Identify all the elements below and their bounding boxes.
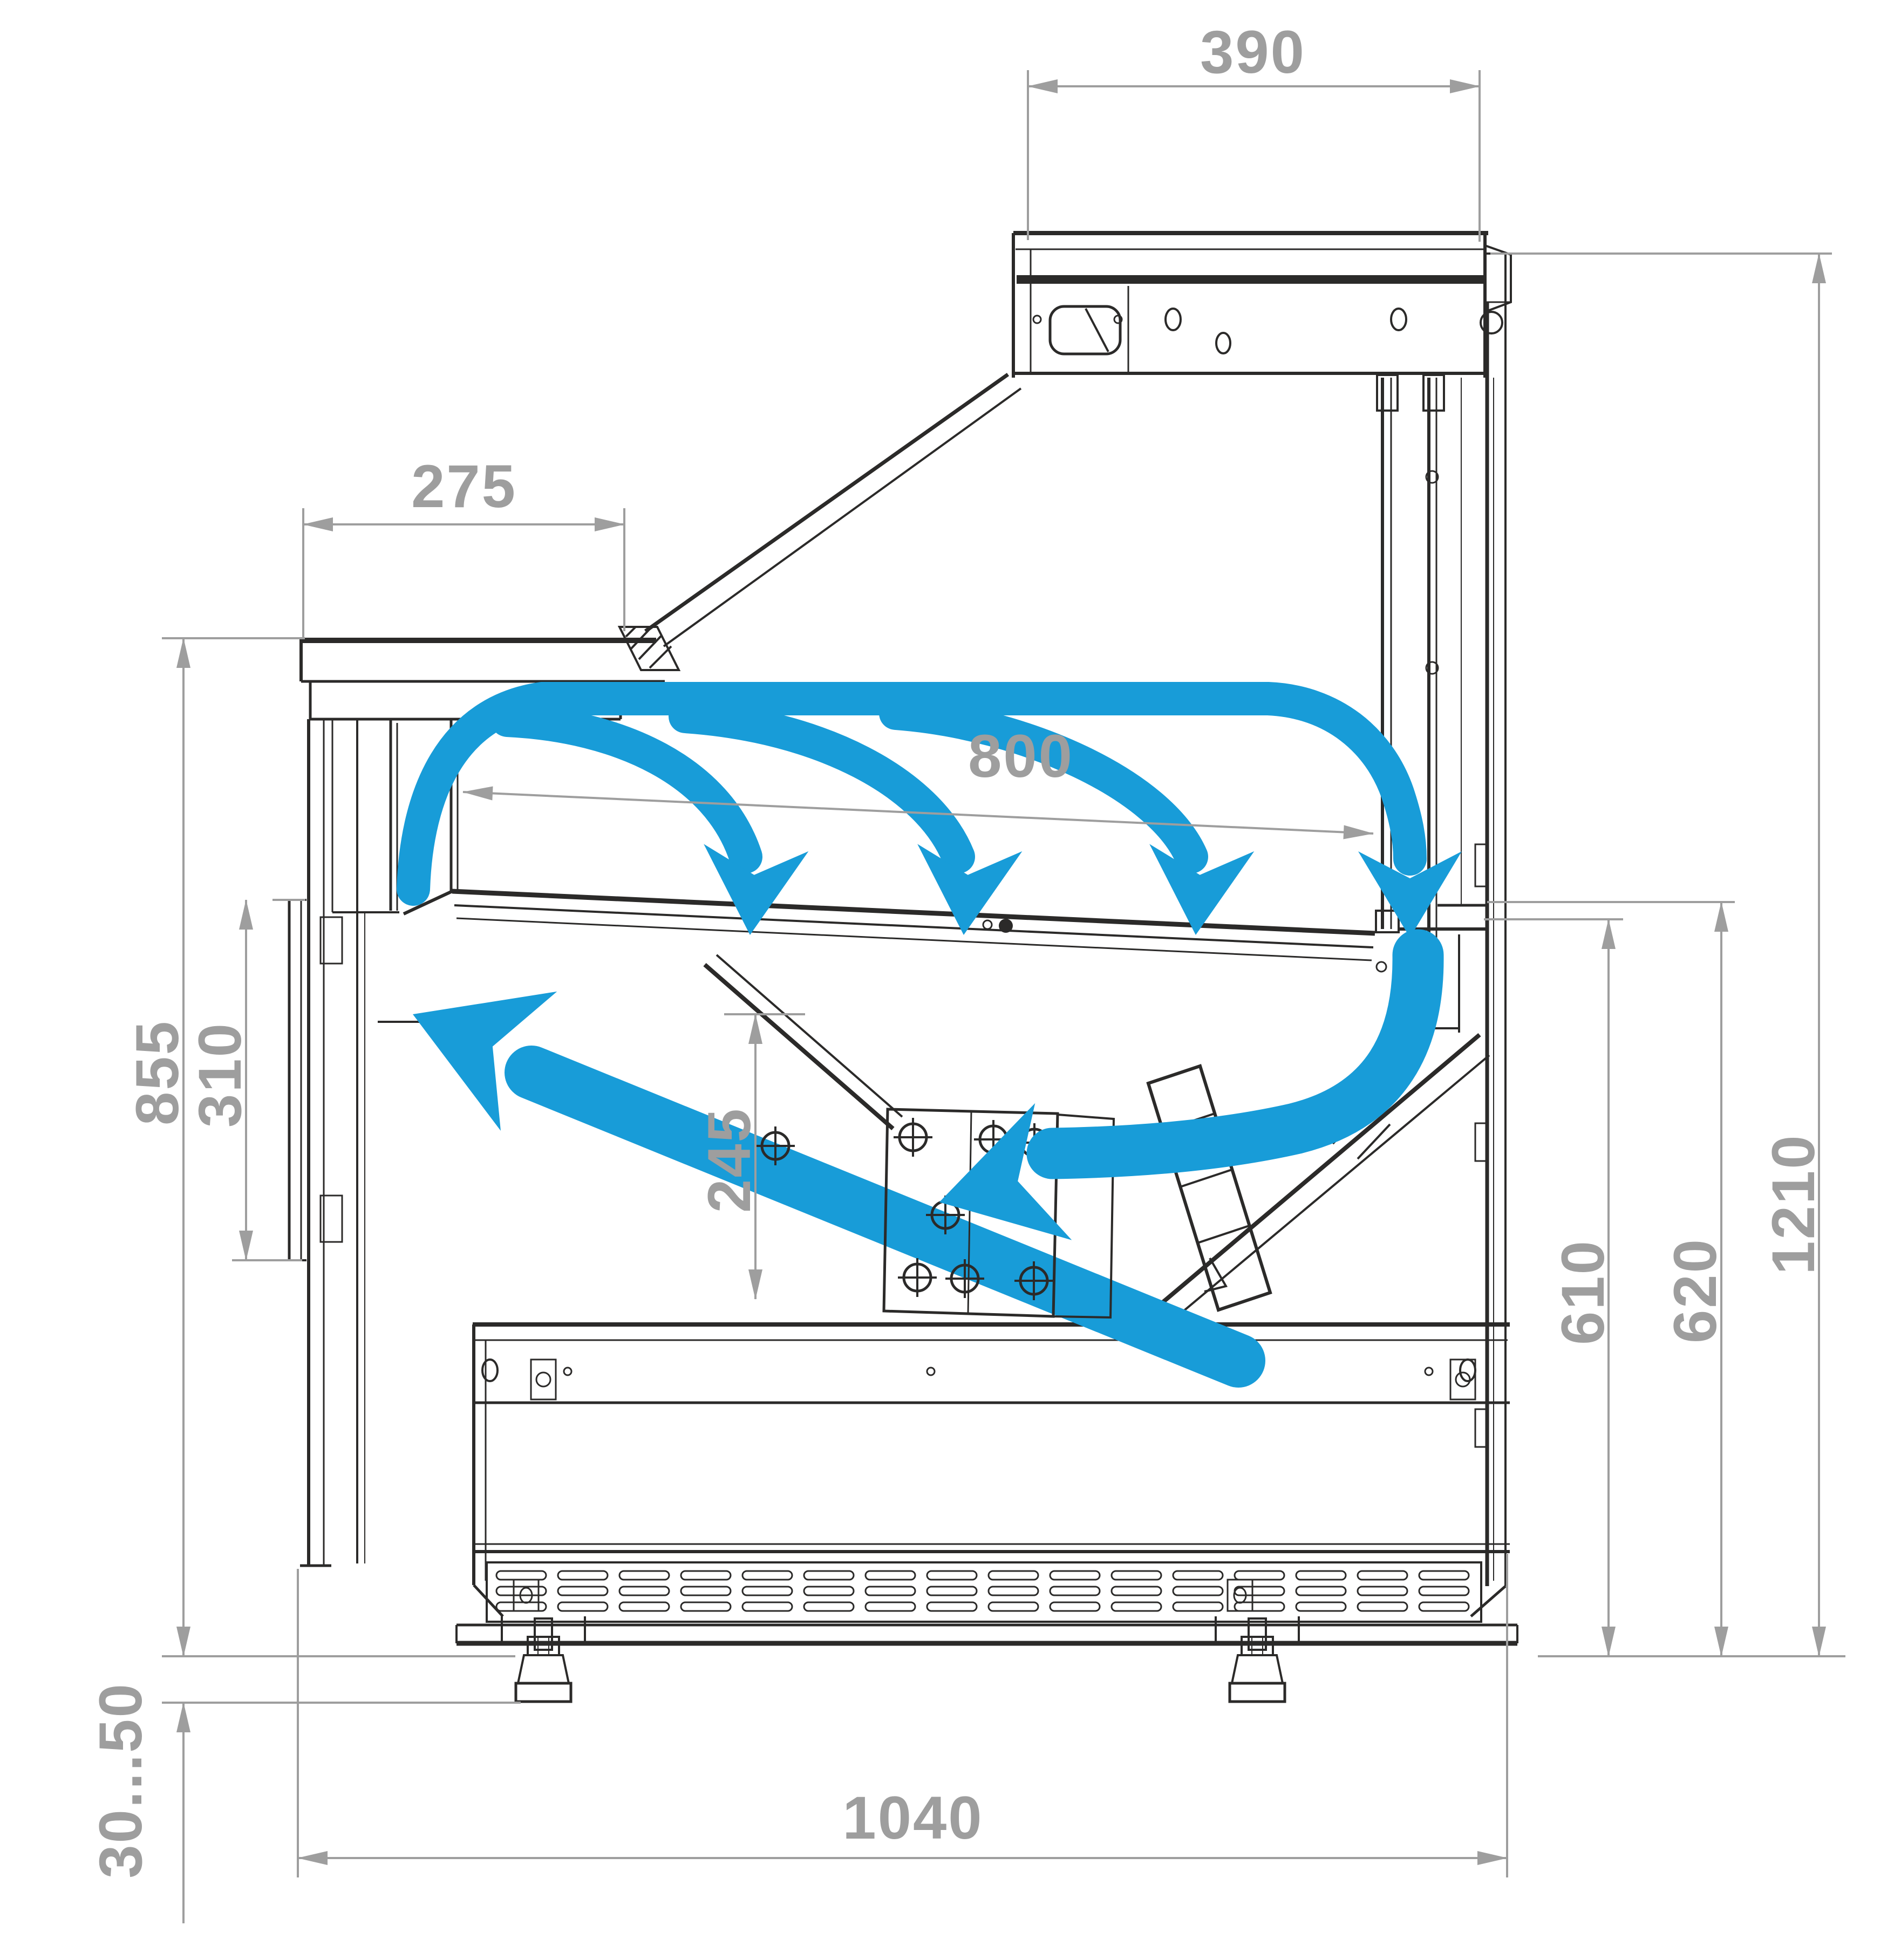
vent-grille-slot [558, 1602, 608, 1611]
vent-grille-slot [558, 1571, 608, 1580]
display-deck-part [1377, 962, 1386, 972]
vent-grille-slot [742, 1587, 792, 1595]
air-deflector-part [1180, 1170, 1232, 1187]
dimension-620: 620 [1661, 902, 1729, 1656]
well-structure-part [717, 955, 902, 1117]
vent-grille-slot [558, 1587, 608, 1595]
adjustable-foot-left-part [528, 1637, 559, 1655]
vent-grille-slot [866, 1571, 915, 1580]
dimension-245: 245 [696, 1014, 763, 1299]
dim-855-label: 855 [124, 1020, 191, 1125]
dim-30-50-label: 30...50 [87, 1682, 154, 1879]
drawing-canvas: 390 275 800 855 310 245 610 620 1210 104… [0, 0, 1901, 1960]
front-glass-part [664, 388, 1021, 646]
dimension-855: 855 [124, 638, 191, 1656]
vent-grille-slot [804, 1587, 854, 1595]
vent-grille-slot [619, 1571, 669, 1580]
vent-grille-slot [927, 1602, 977, 1611]
vent-grille-slot [866, 1602, 915, 1611]
vent-grille-slot [1358, 1587, 1407, 1595]
dim-610-label: 610 [1549, 1239, 1617, 1345]
vent-grille-slot [1112, 1571, 1161, 1580]
front-glass [645, 374, 1021, 646]
well-structure-part [705, 965, 893, 1129]
machine-compartment-part [536, 1372, 550, 1387]
dimension-30-50: 30...50 [87, 1682, 154, 1879]
vent-grille-slot [1296, 1571, 1346, 1580]
dim-275-label: 275 [411, 453, 517, 520]
canopy [1013, 233, 1511, 378]
canopy-part [1033, 316, 1041, 323]
vent-grille-slot [804, 1571, 854, 1580]
dimension-310: 310 [186, 900, 254, 1260]
vent-grille-slot [1419, 1602, 1469, 1611]
vent-grille-slot [681, 1571, 731, 1580]
airflow-return [1052, 955, 1418, 1153]
vent-grille-slot [619, 1602, 669, 1611]
machine-compartment-part [482, 1360, 498, 1381]
vent-grille-slot [1050, 1571, 1100, 1580]
dimension-610: 610 [1549, 919, 1617, 1656]
dim-390-label: 390 [1200, 18, 1306, 86]
dim-1040-label: 1040 [842, 1784, 983, 1852]
vent-grille-slot [866, 1587, 915, 1595]
vent-grille-slot [804, 1602, 854, 1611]
vent-grille-slot [496, 1571, 546, 1580]
vent-grille-slot [1235, 1602, 1284, 1611]
adjustable-foot-left-part [516, 1683, 571, 1702]
dim-245-label: 245 [696, 1107, 763, 1213]
canopy-hole [1166, 309, 1181, 330]
display-deck-part [983, 920, 992, 929]
airflow-arrowhead-supply [385, 945, 557, 1131]
front-glass-part [645, 374, 1008, 631]
dim-800-label: 800 [968, 722, 1074, 790]
vent-grille-slot [1296, 1602, 1346, 1611]
vent-grille-slot [1358, 1571, 1407, 1580]
canopy-hole [1216, 333, 1230, 353]
vent-grille-slot [1296, 1587, 1346, 1595]
vent-grille-slot [1358, 1602, 1407, 1611]
left-wall [284, 691, 646, 1566]
dimension-1040: 1040 [298, 1784, 1507, 1858]
vent-grille-slot [1173, 1587, 1223, 1595]
vent-grille-slot [742, 1571, 792, 1580]
vent-grille-slot [1050, 1602, 1100, 1611]
vent-grille [496, 1571, 1469, 1611]
vent-grille-slot [742, 1602, 792, 1611]
vent-grille-slot [1173, 1602, 1223, 1611]
machine-compartment-part [927, 1368, 935, 1375]
rear-glass-part [1376, 911, 1399, 932]
vent-grille-slot [1419, 1587, 1469, 1595]
vent-grille-slot [681, 1587, 731, 1595]
machine-compartment-part [1425, 1368, 1433, 1375]
air-deflector [1148, 1066, 1270, 1310]
glass-clamp-hatch-part [650, 646, 671, 668]
vent-grille-slot [1112, 1587, 1161, 1595]
machine-compartment-part [474, 1585, 503, 1616]
vent-grille-slot [1112, 1602, 1161, 1611]
adjustable-foot-right [1216, 1580, 1299, 1702]
rear-duct-slope-part [1140, 1035, 1480, 1322]
display-deck-part [999, 919, 1013, 933]
vent-grille-slot [989, 1602, 1038, 1611]
dim-1210-label: 1210 [1760, 1133, 1827, 1274]
canopy-hole [1391, 309, 1406, 330]
vent-grille-slot [1050, 1587, 1100, 1595]
vent-grille-slot [927, 1587, 977, 1595]
rear-glass-part [1423, 375, 1444, 411]
vent-grille-slot [989, 1571, 1038, 1580]
base-frame [456, 1544, 1517, 1643]
well-structure-part [968, 1111, 971, 1314]
dimensions: 390 275 800 855 310 245 610 620 1210 104… [87, 18, 1845, 1923]
rear-duct-slope [1140, 1035, 1489, 1337]
glass-clamp-hatch-part [626, 627, 636, 637]
vent-grille-slot [619, 1587, 669, 1595]
vent-grille-slot [927, 1571, 977, 1580]
dimension-275: 275 [303, 453, 624, 524]
front-panel-310 [284, 900, 342, 1260]
glass-clamp-hatch [619, 627, 679, 670]
machine-compartment [473, 1324, 1510, 1616]
air-deflector-part [1148, 1066, 1270, 1310]
machine-compartment-part [531, 1360, 556, 1399]
canopy-part [1086, 309, 1108, 352]
machine-compartment-part [1460, 1360, 1475, 1381]
adjustable-foot-left-part [518, 1655, 569, 1683]
vent-grille-slot [681, 1602, 731, 1611]
dimension-1210: 1210 [1760, 254, 1827, 1656]
rear-glass-part [1377, 375, 1398, 411]
vent-grille-slot [1173, 1571, 1223, 1580]
canopy-part [1050, 306, 1120, 354]
vent-grille-slot [989, 1587, 1038, 1595]
dimension-390: 390 [1028, 18, 1480, 86]
rear-wall-part [1471, 1586, 1505, 1616]
dim-620-label: 620 [1661, 1238, 1729, 1343]
adjustable-foot-left [502, 1580, 585, 1702]
dim-310-label: 310 [186, 1022, 254, 1128]
vent-grille-slot [1419, 1571, 1469, 1580]
display-deck [404, 891, 1386, 972]
rear-wall [1374, 254, 1510, 1616]
machine-compartment-part [564, 1368, 571, 1375]
airflow-arc-1 [507, 720, 746, 857]
vent-grille-slot [1235, 1571, 1284, 1580]
